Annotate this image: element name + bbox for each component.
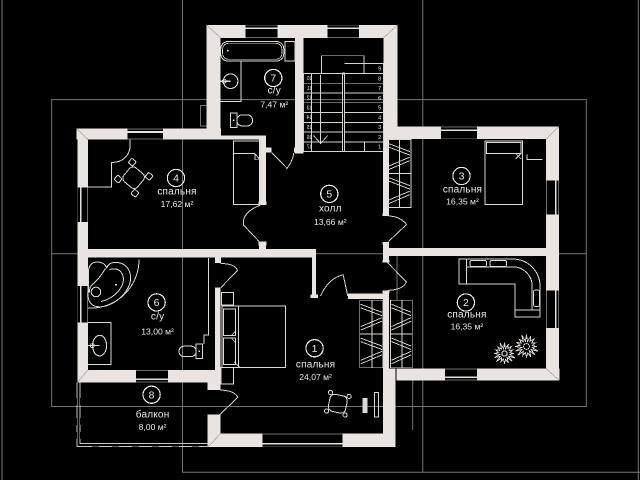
svg-text:спальня: спальня <box>443 185 482 196</box>
svg-text:8: 8 <box>378 76 381 82</box>
svg-text:17,62 м²: 17,62 м² <box>161 199 194 209</box>
svg-text:3: 3 <box>378 125 381 131</box>
svg-text:7: 7 <box>378 86 381 92</box>
svg-text:7,47 м²: 7,47 м² <box>260 100 288 110</box>
svg-text:16,35 м²: 16,35 м² <box>446 197 479 207</box>
svg-text:13,00 м²: 13,00 м² <box>141 327 174 337</box>
svg-text:4: 4 <box>173 173 179 185</box>
svg-text:8: 8 <box>149 389 155 401</box>
svg-text:10: 10 <box>307 76 313 82</box>
svg-text:24,07 м²: 24,07 м² <box>299 372 332 382</box>
svg-text:с/у: с/у <box>151 312 164 323</box>
svg-text:балкон: балкон <box>136 409 170 421</box>
svg-text:3: 3 <box>459 171 465 183</box>
svg-text:13: 13 <box>307 105 313 111</box>
svg-text:2: 2 <box>463 297 469 309</box>
svg-text:13,66 м²: 13,66 м² <box>314 217 347 227</box>
svg-text:6: 6 <box>154 297 160 309</box>
svg-text:1: 1 <box>312 343 318 355</box>
svg-text:4: 4 <box>378 115 381 121</box>
svg-text:16,35 м²: 16,35 м² <box>451 322 484 332</box>
svg-text:5: 5 <box>378 106 381 112</box>
svg-text:5: 5 <box>326 189 332 201</box>
svg-text:14: 14 <box>307 115 313 121</box>
svg-text:15: 15 <box>307 125 313 131</box>
svg-text:16: 16 <box>307 135 313 141</box>
svg-text:8,00 м²: 8,00 м² <box>139 422 167 432</box>
svg-text:7: 7 <box>270 73 276 85</box>
svg-text:спальня: спальня <box>157 187 196 198</box>
svg-text:12: 12 <box>307 96 313 102</box>
svg-text:6: 6 <box>378 96 381 102</box>
svg-text:11: 11 <box>307 86 312 92</box>
svg-text:17: 17 <box>307 145 313 151</box>
svg-text:2: 2 <box>378 135 381 141</box>
svg-text:с/у: с/у <box>268 85 281 96</box>
svg-text:спальня: спальня <box>447 310 486 321</box>
svg-text:1: 1 <box>378 145 381 151</box>
svg-text:спальня: спальня <box>296 360 335 371</box>
svg-text:9: 9 <box>378 67 381 73</box>
svg-text:холл: холл <box>319 204 342 215</box>
